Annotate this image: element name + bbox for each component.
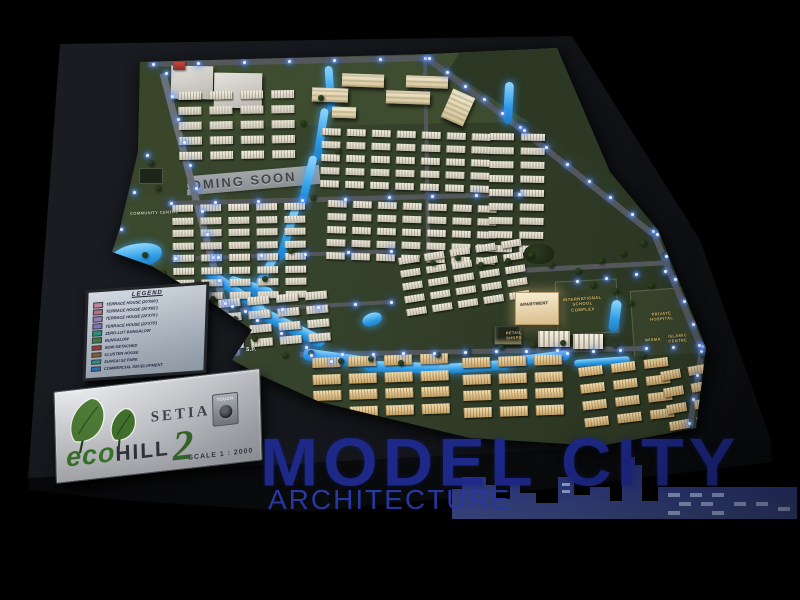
house-block xyxy=(535,387,563,398)
house-block xyxy=(377,228,396,235)
legend-board: LEGEND TERRACE HOUSE (20'X60')TERRACE HO… xyxy=(83,281,210,381)
map-label: INTERNATIONAL SCHOOL COMPLEX xyxy=(562,295,602,314)
house-block xyxy=(328,200,347,207)
led-dot xyxy=(588,180,591,183)
house-block xyxy=(371,143,390,150)
house-block xyxy=(406,306,427,316)
led-dot xyxy=(390,301,393,304)
house-block xyxy=(488,217,512,224)
house-block xyxy=(402,229,421,236)
house-block xyxy=(240,91,263,99)
tree xyxy=(252,336,258,342)
house-block xyxy=(285,253,306,260)
led-dot xyxy=(495,350,498,353)
house-block xyxy=(257,241,278,248)
legend-panel: LEGEND TERRACE HOUSE (20'X60')TERRACE HO… xyxy=(86,285,207,379)
tree xyxy=(148,160,154,166)
house-block xyxy=(172,217,193,224)
house-block xyxy=(489,203,513,210)
tree xyxy=(300,120,306,126)
tree xyxy=(282,352,288,358)
house-block xyxy=(490,133,514,140)
house-block xyxy=(385,371,413,382)
house-block xyxy=(249,323,272,333)
tree xyxy=(560,340,566,346)
house-block xyxy=(285,278,306,285)
shop-building xyxy=(573,334,603,349)
house-block xyxy=(451,260,472,270)
house-block xyxy=(272,120,295,128)
house-block xyxy=(222,340,245,350)
legend-swatch xyxy=(93,302,103,308)
house-block xyxy=(272,150,295,158)
led-dot xyxy=(556,349,559,352)
house-block xyxy=(308,332,331,342)
tree xyxy=(120,260,126,266)
house-block xyxy=(385,387,413,398)
led-dot xyxy=(566,352,569,355)
led-dot xyxy=(672,346,675,349)
house-block xyxy=(313,374,341,385)
house-block xyxy=(397,131,416,138)
led-dot xyxy=(174,257,177,260)
building-slab xyxy=(312,87,348,102)
house-block xyxy=(173,267,194,274)
house-block xyxy=(178,92,201,100)
led-dot xyxy=(698,344,701,347)
house-block xyxy=(420,170,439,177)
led-dot xyxy=(256,319,259,322)
apt-building xyxy=(515,292,559,325)
house-block xyxy=(346,142,365,149)
led-dot xyxy=(619,349,622,352)
tree xyxy=(210,296,216,302)
house-block xyxy=(398,255,419,265)
house-block xyxy=(229,241,250,248)
house-block xyxy=(210,136,233,144)
house-block xyxy=(428,203,447,210)
house-block xyxy=(271,90,294,98)
led-dot xyxy=(281,308,284,311)
house-block xyxy=(179,122,202,130)
led-dot xyxy=(120,228,123,231)
legend-swatch xyxy=(92,345,102,351)
legend-swatch xyxy=(92,338,102,344)
tree xyxy=(590,282,596,288)
house-block xyxy=(396,144,415,151)
house-block xyxy=(229,266,250,273)
map-label: PRIVATE HOSPITAL xyxy=(650,310,674,322)
house-block xyxy=(370,169,389,176)
house-block xyxy=(462,357,490,368)
house-block xyxy=(395,183,414,190)
house-block xyxy=(322,128,341,135)
house-block xyxy=(666,402,687,414)
led-dot xyxy=(464,351,467,354)
house-block xyxy=(345,168,364,175)
legend-swatch xyxy=(92,323,102,329)
house-block xyxy=(432,302,453,312)
house-block xyxy=(472,133,491,140)
led-dot xyxy=(518,193,521,196)
led-dot xyxy=(165,72,168,75)
house-block xyxy=(582,399,607,411)
tree xyxy=(530,342,536,348)
house-block xyxy=(349,372,377,383)
house-block xyxy=(347,129,366,136)
house-block xyxy=(401,242,420,249)
legend-rows: TERRACE HOUSE (20'X60')TERRACE HOUSE (20… xyxy=(91,295,201,372)
led-dot xyxy=(656,233,659,236)
house-cluster xyxy=(320,128,497,199)
legend-swatch xyxy=(92,330,102,336)
house-block xyxy=(452,230,471,237)
house-block xyxy=(428,276,449,286)
led-dot xyxy=(566,163,569,166)
house-block xyxy=(693,397,714,409)
house-block xyxy=(312,357,340,368)
house-block xyxy=(500,405,528,416)
house-block xyxy=(519,218,543,225)
house-block xyxy=(371,156,390,163)
house-block xyxy=(421,157,440,164)
house-block xyxy=(445,171,464,178)
house-block xyxy=(285,240,306,247)
house-block xyxy=(326,252,345,259)
house-block xyxy=(470,185,489,192)
house-block xyxy=(200,229,221,236)
tree xyxy=(612,342,618,348)
house-block xyxy=(426,242,445,249)
house-block xyxy=(256,228,277,235)
house-block xyxy=(378,202,397,209)
house-block xyxy=(421,370,449,381)
house-block xyxy=(284,203,305,210)
house-block xyxy=(534,355,562,366)
led-dot xyxy=(525,350,528,353)
plaque-brand-hill: HILL xyxy=(115,437,170,466)
house-block xyxy=(376,241,395,248)
house-block xyxy=(353,201,372,208)
led-dot xyxy=(310,354,313,357)
led-dot xyxy=(379,58,382,61)
house-block xyxy=(452,217,471,224)
led-dot xyxy=(146,154,149,157)
house-block xyxy=(210,151,233,159)
legend-swatch xyxy=(91,352,101,358)
plaque-brand-number: 2 xyxy=(172,421,194,472)
house-block xyxy=(305,291,328,301)
led-dot xyxy=(243,61,246,64)
tree xyxy=(318,95,324,101)
house-block xyxy=(400,268,421,278)
house-block xyxy=(521,134,545,141)
led-dot xyxy=(354,303,357,306)
tree xyxy=(335,148,341,154)
house-block xyxy=(499,372,527,383)
house-block xyxy=(421,144,440,151)
house-block xyxy=(320,180,339,187)
tree xyxy=(498,344,504,350)
house-block xyxy=(351,253,370,260)
house-block xyxy=(278,321,301,331)
house-block xyxy=(644,357,669,369)
touch-button-circle xyxy=(218,403,233,420)
house-block xyxy=(464,406,492,417)
tree xyxy=(528,252,534,258)
led-dot xyxy=(635,273,638,276)
tree xyxy=(155,185,161,191)
house-block xyxy=(241,121,264,129)
house-block xyxy=(535,371,563,382)
tree xyxy=(612,288,618,294)
house-block xyxy=(453,204,472,211)
house-block xyxy=(578,365,603,377)
house-block xyxy=(372,130,391,137)
house-block xyxy=(276,293,299,303)
house-block xyxy=(209,106,232,114)
house-block xyxy=(395,170,414,177)
led-dot xyxy=(700,350,703,353)
house-block xyxy=(471,146,490,153)
building-slab xyxy=(342,73,384,87)
led-dot xyxy=(236,348,239,351)
led-dot xyxy=(692,398,695,401)
led-dot xyxy=(390,250,393,253)
house-block xyxy=(663,385,684,397)
led-dot xyxy=(692,323,695,326)
house-block xyxy=(479,268,500,278)
house-block xyxy=(447,132,466,139)
house-block xyxy=(228,204,249,211)
led-dot xyxy=(201,210,204,213)
house-block xyxy=(313,390,341,401)
house-block xyxy=(488,231,512,238)
tree xyxy=(310,195,316,201)
led-dot xyxy=(545,146,548,149)
tree xyxy=(548,262,554,268)
house-block xyxy=(219,312,242,322)
house-block xyxy=(404,293,425,303)
tree xyxy=(575,268,581,274)
red-building xyxy=(173,62,185,70)
house-block xyxy=(326,239,345,246)
house-block xyxy=(483,294,504,304)
led-dot xyxy=(428,57,431,60)
house-block xyxy=(229,279,250,286)
led-dot xyxy=(171,95,174,98)
house-block xyxy=(210,121,233,129)
house-block xyxy=(209,91,232,99)
house-block xyxy=(489,161,513,168)
house-block xyxy=(420,183,439,190)
led-dot xyxy=(424,57,427,60)
house-block xyxy=(617,412,642,424)
tree xyxy=(505,258,511,264)
house-block xyxy=(520,162,544,169)
house-block xyxy=(284,215,305,222)
house-block xyxy=(696,414,717,426)
house-block xyxy=(201,267,222,274)
plaque-brand-eco: eco xyxy=(66,437,116,473)
house-block xyxy=(271,105,294,113)
house-block xyxy=(349,389,377,400)
led-dot xyxy=(674,278,677,281)
house-block xyxy=(352,214,371,221)
model-photo-scene: COMING SOON COMMUNITY CENTRES.P.APARTMEN… xyxy=(0,0,800,600)
house-block xyxy=(321,154,340,161)
tree xyxy=(640,240,646,246)
house-block xyxy=(376,254,395,261)
tree xyxy=(620,250,626,256)
tree xyxy=(338,358,344,364)
house-block xyxy=(241,136,264,144)
house-block xyxy=(536,404,564,415)
house-block xyxy=(615,395,640,407)
house-block xyxy=(421,386,449,397)
house-block xyxy=(660,369,681,381)
house-block xyxy=(178,107,201,115)
house-block xyxy=(229,254,250,261)
tree xyxy=(628,300,634,306)
house-block xyxy=(691,380,712,392)
building-slab xyxy=(332,107,356,119)
house-block xyxy=(257,266,278,273)
house-block xyxy=(346,155,365,162)
house-block xyxy=(396,157,415,164)
house-block xyxy=(386,404,414,415)
led-dot xyxy=(152,63,155,66)
led-dot xyxy=(170,202,173,205)
house-block xyxy=(453,272,474,282)
tree xyxy=(478,262,484,268)
house-block xyxy=(422,131,441,138)
house-block xyxy=(463,374,491,385)
led-dot xyxy=(330,360,333,363)
house-block xyxy=(345,181,364,188)
house-block xyxy=(520,176,544,183)
house-block xyxy=(490,147,514,154)
map-label: WISMA xyxy=(645,336,661,342)
house-block xyxy=(320,167,339,174)
legend-swatch xyxy=(91,366,101,372)
house-block xyxy=(426,264,447,274)
led-dot xyxy=(433,352,436,355)
led-dot xyxy=(576,280,579,283)
led-dot xyxy=(519,126,522,129)
house-block xyxy=(455,285,476,295)
led-dot xyxy=(446,71,449,74)
led-dot xyxy=(214,201,217,204)
legend-item-label: BUNGALOW xyxy=(105,336,129,343)
led-dot xyxy=(244,310,247,313)
led-dot xyxy=(696,374,699,377)
house-block xyxy=(580,382,605,394)
house-block xyxy=(327,213,346,220)
led-dot xyxy=(688,422,691,425)
house-block xyxy=(481,281,502,291)
map-label: S.P. xyxy=(246,347,256,354)
house-block xyxy=(201,242,222,249)
led-dot xyxy=(631,213,634,216)
house-block xyxy=(471,159,490,166)
house-cluster xyxy=(462,354,572,424)
house-block xyxy=(377,215,396,222)
house-block xyxy=(499,389,527,400)
house-block xyxy=(248,310,271,320)
house-block xyxy=(350,405,378,416)
house-block xyxy=(256,203,277,210)
house-block xyxy=(256,216,277,223)
house-block xyxy=(279,335,302,345)
house-block xyxy=(584,416,609,428)
tree xyxy=(368,356,374,362)
house-block xyxy=(218,298,241,308)
house-block xyxy=(470,172,489,179)
led-dot xyxy=(177,118,180,121)
house-block xyxy=(247,296,270,306)
house-block xyxy=(463,390,491,401)
led-dot xyxy=(304,253,307,256)
house-block xyxy=(352,227,371,234)
house-block xyxy=(228,229,249,236)
led-dot xyxy=(344,198,347,201)
house-block xyxy=(402,216,421,223)
tree xyxy=(398,360,404,366)
house-block xyxy=(427,229,446,236)
map-label: RETAIL SHOPS xyxy=(506,331,522,342)
touch-button-label: TOUCH xyxy=(217,395,234,402)
led-dot xyxy=(257,200,260,203)
house-block xyxy=(220,326,243,336)
led-dot xyxy=(217,256,220,259)
tree xyxy=(430,260,436,266)
house-block xyxy=(172,230,193,237)
house-block xyxy=(489,175,513,182)
tree xyxy=(262,276,268,282)
led-dot xyxy=(317,306,320,309)
led-dot xyxy=(230,325,233,328)
building-slab xyxy=(386,90,430,105)
led-dot xyxy=(288,60,291,63)
led-dot xyxy=(523,129,526,132)
tree xyxy=(598,258,604,264)
house-block xyxy=(611,361,636,373)
touch-button: TOUCH xyxy=(212,392,239,427)
led-dot xyxy=(664,270,667,273)
house-block xyxy=(285,265,306,272)
house-block xyxy=(446,145,465,152)
tree xyxy=(648,282,654,288)
legend-swatch xyxy=(93,309,103,315)
tree xyxy=(232,316,238,322)
led-dot xyxy=(301,199,304,202)
sign-building xyxy=(139,168,163,184)
house-block xyxy=(489,189,513,196)
house-block xyxy=(501,239,522,249)
house-block xyxy=(240,106,263,114)
led-dot xyxy=(701,345,704,348)
house-cluster xyxy=(178,90,303,167)
house-cluster xyxy=(218,290,338,356)
house-block xyxy=(403,203,422,210)
house-block xyxy=(520,204,544,211)
led-dot xyxy=(183,141,186,144)
house-block xyxy=(446,158,465,165)
house-block xyxy=(475,243,496,253)
house-block xyxy=(505,264,526,274)
tree xyxy=(142,252,148,258)
